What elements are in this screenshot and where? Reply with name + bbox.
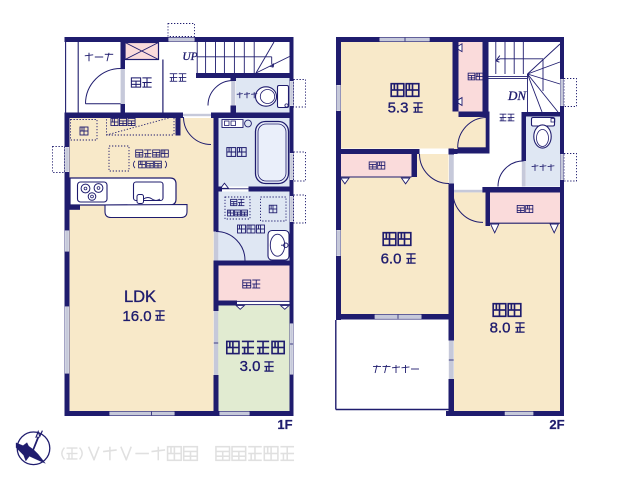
svg-text:1F: 1F (277, 417, 292, 432)
svg-text:5.3: 5.3 (388, 100, 409, 117)
svg-text:3.0: 3.0 (240, 358, 261, 375)
svg-text:2F: 2F (549, 417, 564, 432)
svg-text:DN: DN (507, 88, 527, 103)
svg-text:6.0: 6.0 (381, 251, 402, 268)
svg-text:8.0: 8.0 (490, 320, 511, 337)
svg-text:LDK: LDK (124, 288, 156, 306)
svg-text:UP: UP (182, 51, 197, 63)
svg-text:16.0: 16.0 (122, 308, 151, 325)
